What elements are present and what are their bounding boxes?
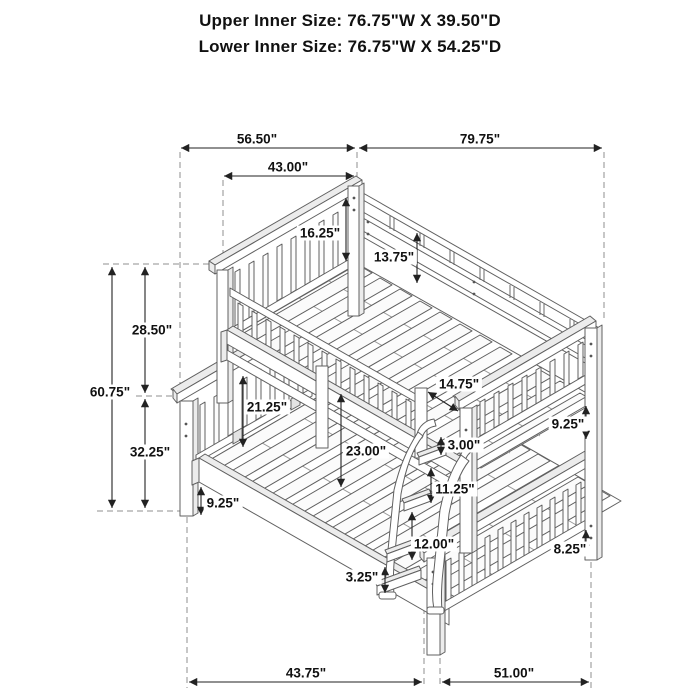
dim-label-lower-foot-rail-gap: 8.25" bbox=[551, 542, 590, 557]
dim-label-top-right-span: 79.75" bbox=[457, 132, 503, 147]
dim-label-upper-bed-width: 43.00" bbox=[265, 160, 311, 175]
dim-label-rail-to-deck: 21.25" bbox=[244, 400, 290, 415]
dim-label-lower-section: 32.25" bbox=[127, 445, 173, 460]
dim-label-lower-rail-clearance: 9.25" bbox=[204, 496, 243, 511]
dim-label-headboard-inner: 13.75" bbox=[371, 250, 417, 265]
dim-label-upper-section: 28.50" bbox=[129, 323, 175, 338]
dim-label-ladder-top-gap: 3.00" bbox=[445, 438, 484, 453]
ladder-right-foot bbox=[427, 607, 444, 614]
dimension-diagram: Upper Inner Size: 76.75"W X 39.50"D Lowe… bbox=[0, 0, 700, 700]
guardrail-mid-post bbox=[316, 366, 328, 448]
dim-label-floor-left-span: 43.75" bbox=[283, 666, 329, 681]
dim-label-guardrail-height: 16.25" bbox=[297, 226, 343, 241]
dim-label-top-left-span: 56.50" bbox=[234, 132, 280, 147]
dim-label-bunk-clearance: 23.00" bbox=[343, 444, 389, 459]
dim-label-ladder-to-footboard: 14.75" bbox=[436, 377, 482, 392]
dim-label-rung-spacing-lower: 12.00" bbox=[411, 537, 457, 552]
ladder-left-foot bbox=[379, 592, 396, 599]
dim-label-ladder-foot: 3.25" bbox=[343, 570, 382, 585]
dim-label-upper-foot-rail-gap: 9.25" bbox=[549, 417, 588, 432]
dim-label-overall-height: 60.75" bbox=[87, 385, 133, 400]
bunk-bed-line-drawing bbox=[0, 0, 700, 700]
dim-label-floor-right-span: 51.00" bbox=[491, 666, 537, 681]
dim-label-rung-spacing-upper: 11.25" bbox=[432, 482, 477, 497]
